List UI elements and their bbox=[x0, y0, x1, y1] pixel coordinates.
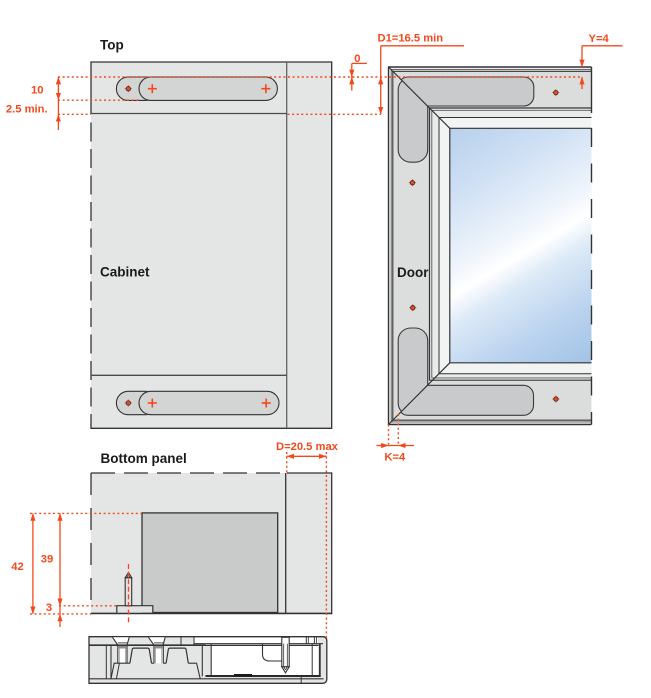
svg-text:2.5 min.: 2.5 min. bbox=[6, 103, 48, 115]
svg-text:Top: Top bbox=[100, 38, 124, 53]
svg-text:Y=4: Y=4 bbox=[589, 33, 610, 45]
svg-text:Cabinet: Cabinet bbox=[100, 265, 150, 280]
svg-text:D=20.5 max: D=20.5 max bbox=[276, 441, 339, 453]
svg-text:0: 0 bbox=[354, 53, 360, 65]
svg-text:Door: Door bbox=[397, 265, 429, 280]
svg-text:42: 42 bbox=[11, 561, 23, 573]
svg-text:39: 39 bbox=[41, 554, 53, 566]
svg-text:D1=16.5 min: D1=16.5 min bbox=[378, 33, 444, 45]
svg-text:Bottom panel: Bottom panel bbox=[101, 451, 187, 466]
svg-text:3: 3 bbox=[46, 602, 52, 614]
svg-text:K=4: K=4 bbox=[384, 452, 406, 464]
svg-text:10: 10 bbox=[31, 85, 43, 97]
